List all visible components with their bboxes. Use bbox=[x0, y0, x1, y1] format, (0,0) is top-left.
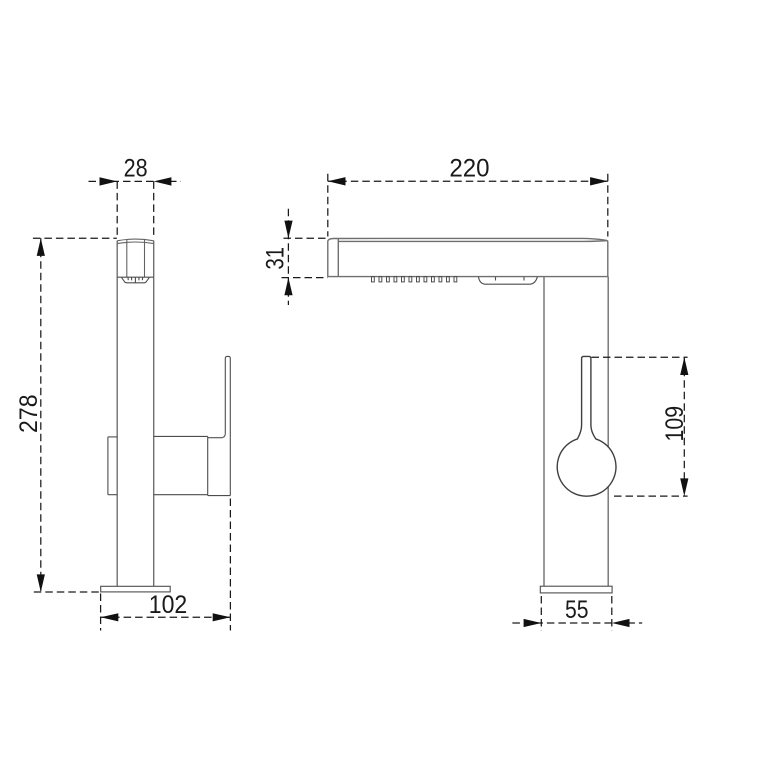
svg-text:109: 109 bbox=[661, 406, 689, 442]
svg-text:31: 31 bbox=[262, 247, 290, 270]
svg-text:55: 55 bbox=[565, 596, 589, 624]
svg-text:278: 278 bbox=[15, 394, 43, 433]
svg-text:102: 102 bbox=[149, 591, 188, 619]
svg-text:220: 220 bbox=[449, 155, 489, 183]
svg-text:28: 28 bbox=[124, 155, 148, 183]
